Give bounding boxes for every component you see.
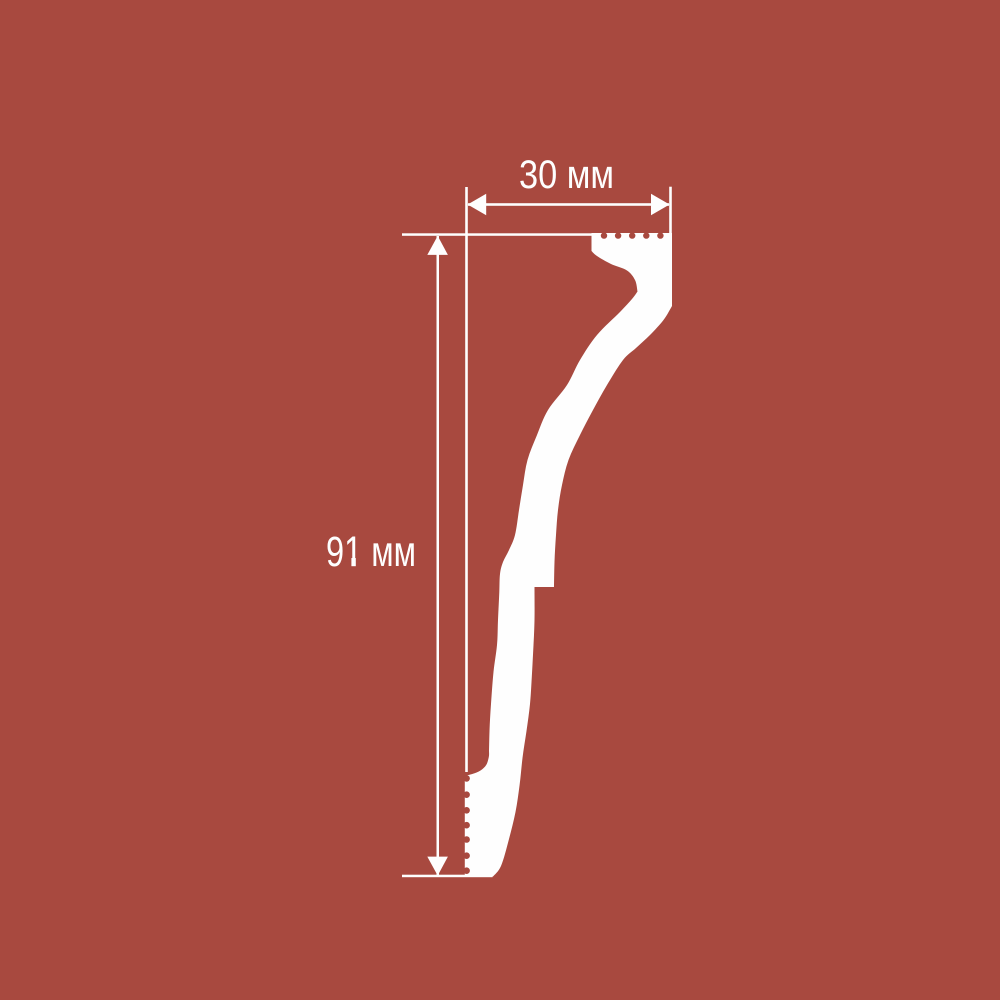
svg-text:91 мм: 91 мм (326, 529, 416, 576)
svg-text:30 мм: 30 мм (519, 153, 614, 197)
